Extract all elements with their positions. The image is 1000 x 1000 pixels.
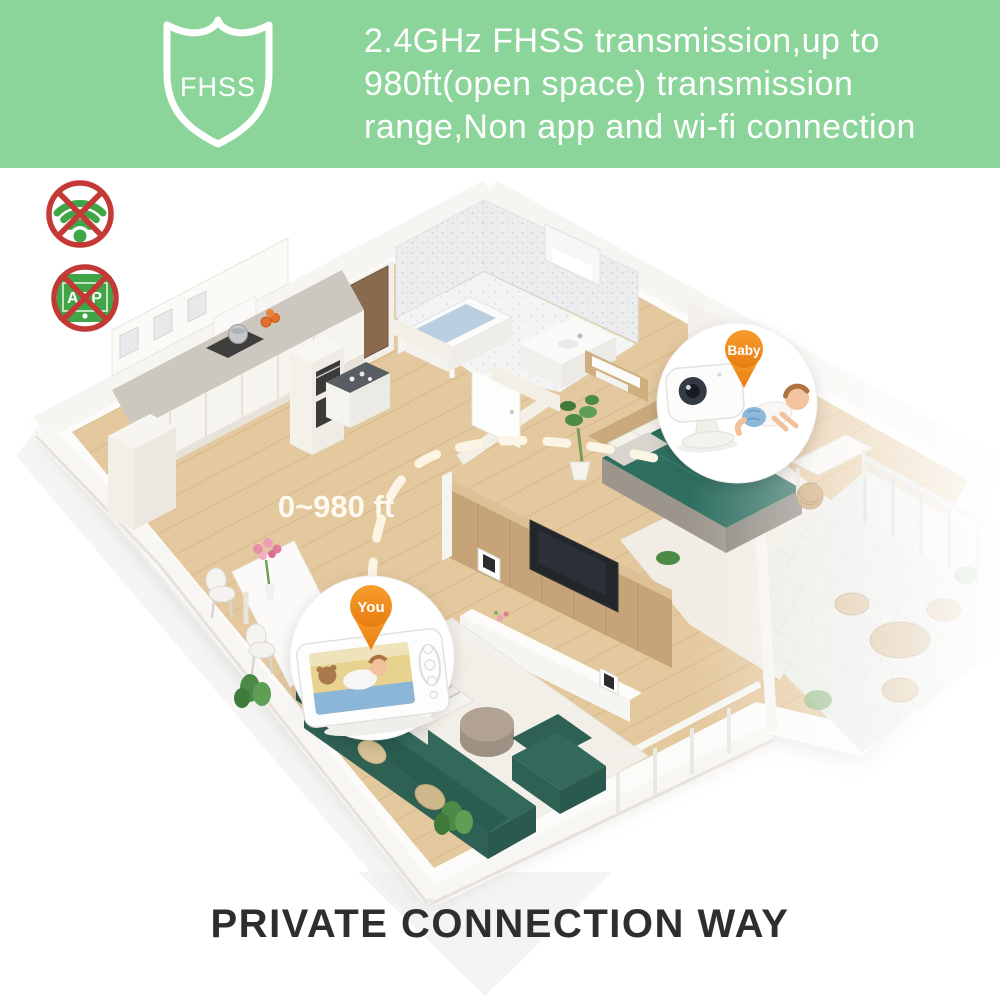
- you-callout: You: [290, 576, 454, 742]
- banner-line-1: 2.4GHz FHSS transmission,up to: [364, 20, 916, 63]
- baby-pin-label: Baby: [727, 343, 761, 358]
- you-pin-label: You: [357, 599, 384, 616]
- page: FHSS 2.4GHz FHSS transmission,up to 980f…: [0, 0, 1000, 1000]
- banner-text: 2.4GHz FHSS transmission,up to 980ft(ope…: [364, 20, 916, 149]
- banner-line-2: 980ft(open space) transmission: [364, 63, 916, 106]
- pouf: [460, 707, 514, 757]
- page-title: PRIVATE CONNECTION WAY: [0, 902, 1000, 947]
- no-wifi-icon: [49, 183, 111, 245]
- baby-callout: Baby: [657, 323, 817, 483]
- range-label: 0~980 ft: [278, 489, 394, 524]
- shield-label: FHSS: [180, 72, 256, 102]
- banner-line-3: range,Non app and wi-fi connection: [364, 106, 916, 149]
- header-banner: FHSS 2.4GHz FHSS transmission,up to 980f…: [0, 0, 1000, 168]
- fade-overlay: [690, 160, 1000, 1000]
- no-app-icon: APP: [54, 267, 116, 329]
- kitchen-island: [108, 414, 176, 530]
- fhss-shield-icon: FHSS: [158, 12, 278, 157]
- bed-foot-plant: [656, 551, 680, 565]
